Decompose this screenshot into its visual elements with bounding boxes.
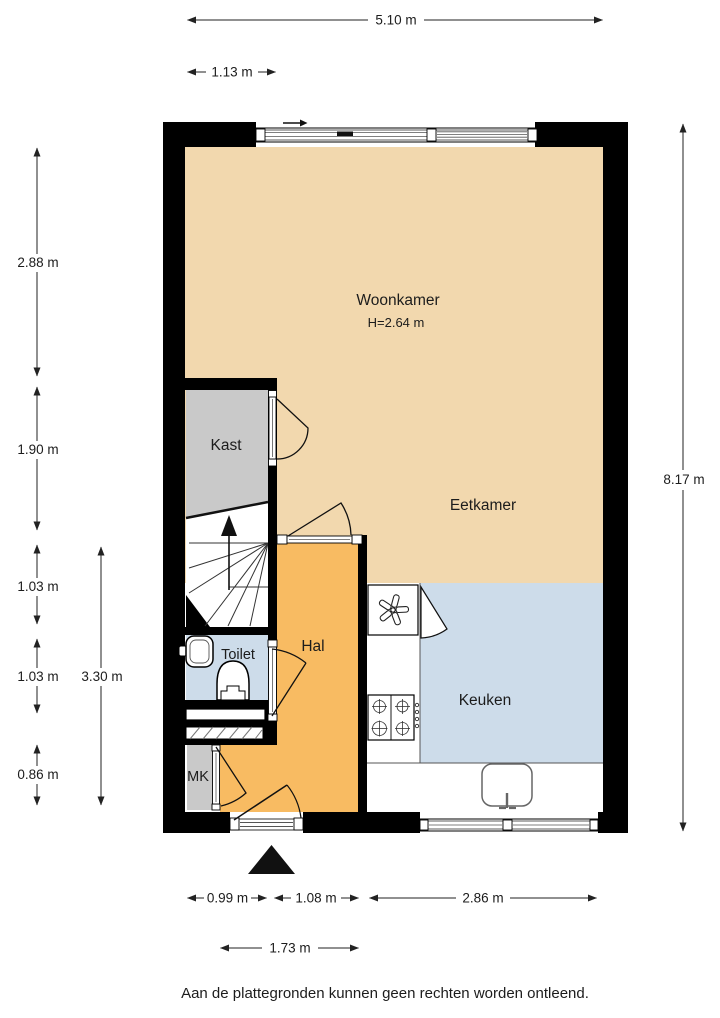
disclaimer-text: Aan de plattegronden kunnen geen rechten… xyxy=(181,985,589,1002)
hal-label: Hal xyxy=(301,638,324,655)
dim-entry-width: 0.99 m xyxy=(207,891,248,906)
dim-keuken-width: 2.86 m xyxy=(462,891,503,906)
dim-woonkamer-depth: 2.88 m xyxy=(17,255,58,270)
toilet-icon xyxy=(217,661,249,700)
keuken-floor xyxy=(420,583,603,763)
dim-total-width: 5.10 m xyxy=(375,13,416,28)
slide-direction-arrow-icon xyxy=(283,120,308,127)
eetkamer-label: Eetkamer xyxy=(450,497,516,514)
outer-wall-bottom-left xyxy=(163,812,230,833)
floorplan-svg: Woonkamer H=2.64 m Eetkamer Kast Toilet … xyxy=(0,0,720,1018)
outer-wall-bottom-mid xyxy=(303,812,420,833)
sliding-panel-mark xyxy=(337,132,353,137)
floorplan-page: Woonkamer H=2.64 m Eetkamer Kast Toilet … xyxy=(0,0,720,1018)
mk-label: MK xyxy=(187,769,209,785)
keuken-label: Keuken xyxy=(459,692,512,709)
kast-top-wall xyxy=(183,378,277,390)
dim-mk-depth: 0.86 m xyxy=(17,767,58,782)
stairs-toilet-wall xyxy=(183,627,277,635)
woonkamer-ceiling-height: H=2.64 m xyxy=(368,315,425,330)
kitchen-window xyxy=(420,819,598,831)
dim-kast-depth: 1.90 m xyxy=(17,442,58,457)
crawlspace-hatch xyxy=(186,727,263,739)
outer-wall-left xyxy=(163,122,185,833)
entrance-marker xyxy=(248,845,295,874)
dim-hal-width: 1.08 m xyxy=(295,891,336,906)
outer-wall-top-left xyxy=(163,122,256,147)
dim-total-depth: 8.17 m xyxy=(663,472,704,487)
dim-stairs-depth: 1.03 m xyxy=(17,579,58,594)
dim-hal-depth: 3.30 m xyxy=(81,669,122,684)
hal-keuken-wall xyxy=(358,535,367,812)
dim-toilet-depth: 1.03 m xyxy=(17,669,58,684)
woonkamer-label: Woonkamer xyxy=(356,292,439,309)
dim-entry-hal-width: 1.73 m xyxy=(269,941,310,956)
dim-kast-width: 1.13 m xyxy=(211,65,252,80)
kast-floor xyxy=(186,390,268,518)
kast-label: Kast xyxy=(210,437,242,454)
duct-niche xyxy=(186,709,265,720)
toilet-label: Toilet xyxy=(221,647,255,663)
top-window xyxy=(256,128,537,142)
outer-wall-right xyxy=(603,122,628,833)
outer-wall-bottom-right xyxy=(598,812,628,833)
stove-icon xyxy=(368,695,419,740)
sink-icon xyxy=(482,764,532,808)
